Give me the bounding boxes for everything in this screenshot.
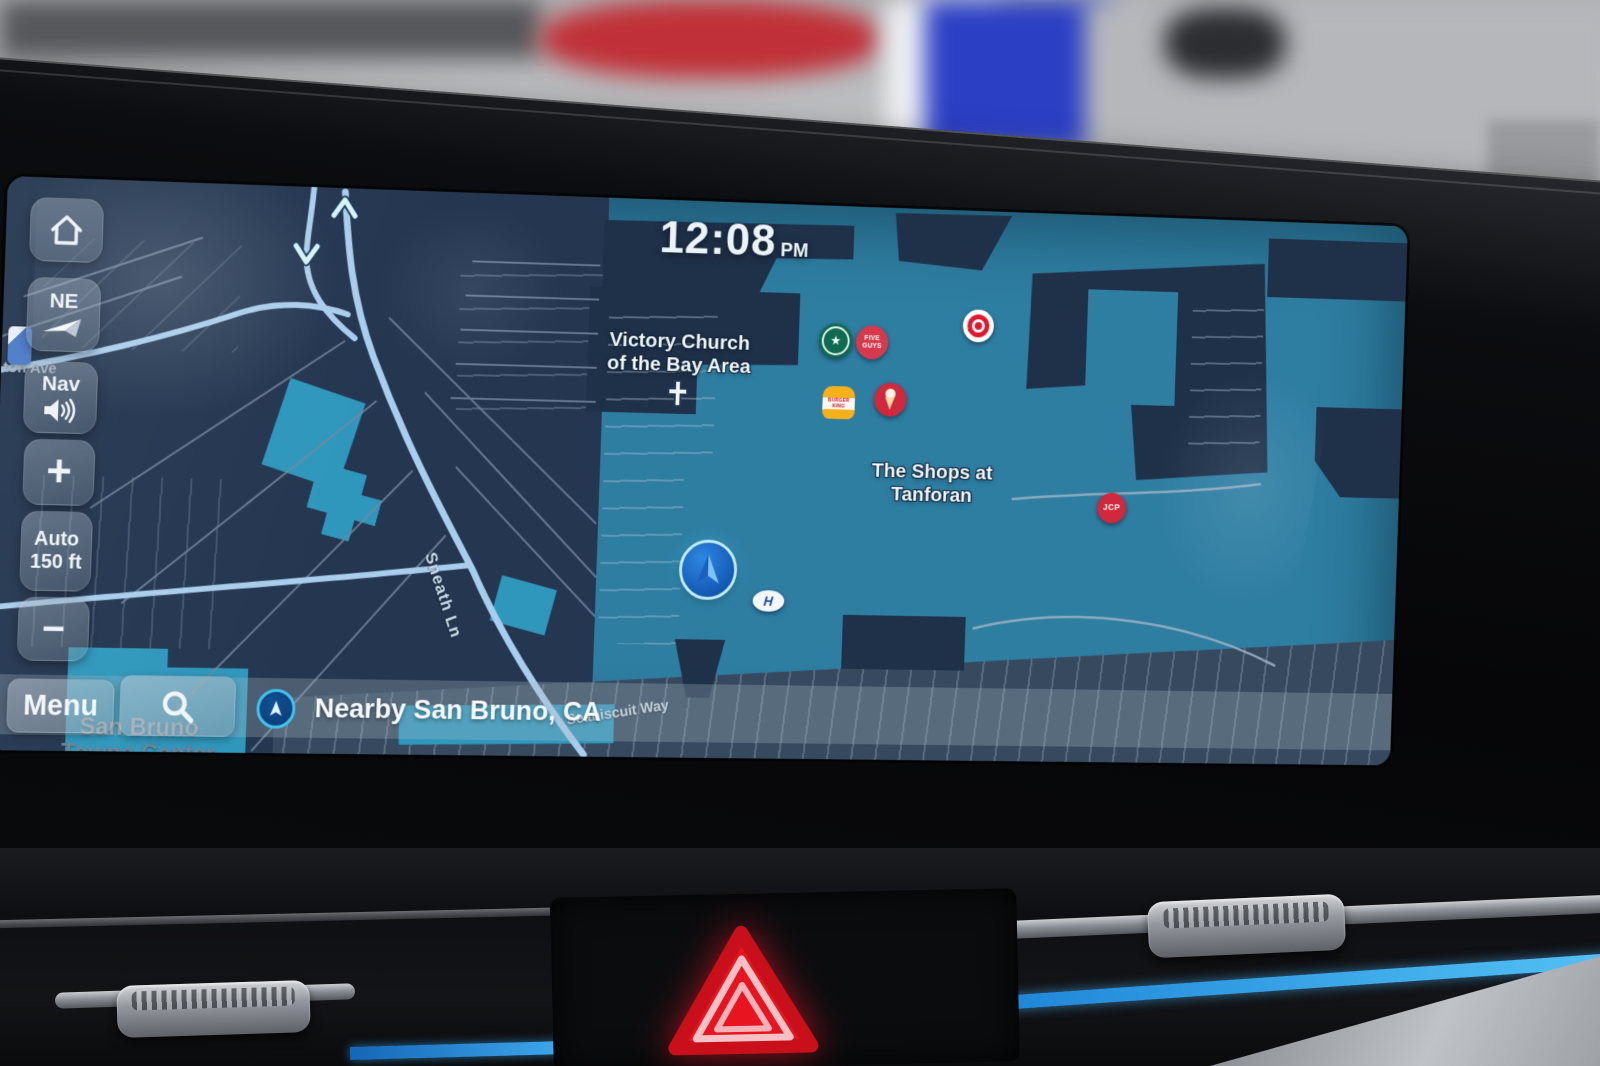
scale-line1: Auto [34, 528, 80, 552]
mall-label-line2: Tanforan [839, 481, 1023, 508]
vent-trim-bar [0, 908, 550, 929]
search-button[interactable] [119, 675, 237, 737]
map-scale-button[interactable]: Auto 150 ft [19, 511, 93, 592]
five-guys-line2: GUYS [862, 342, 882, 350]
zoom-out-label: − [41, 609, 66, 649]
vent-knob[interactable] [1147, 894, 1346, 959]
poi-label-mall: The Shops at Tanforan [839, 459, 1023, 508]
five-guys-line1: FIVE [862, 335, 882, 343]
clock-meridiem: PM [780, 240, 808, 262]
church-cross-icon [666, 379, 689, 409]
bk-bottom-bun [822, 409, 855, 419]
infotainment-screen-wrap: Victory Church of the Bay Area The Shops… [0, 176, 1408, 765]
clock-time: 12:08 [659, 210, 777, 265]
scale-line2: 150 ft [29, 551, 81, 575]
poi-burger-king-icon[interactable]: BURGER KING [821, 386, 856, 421]
hazard-button[interactable] [661, 917, 824, 1065]
menu-button-label: Menu [23, 689, 99, 723]
ambient-light-strip [350, 1041, 565, 1060]
speaker-icon [42, 397, 79, 424]
red-car-blur [540, 0, 880, 78]
ceiling-shadow [0, 0, 540, 58]
cone-body [885, 397, 895, 410]
zoom-in-label: + [45, 450, 72, 494]
car-wheel-blur [1165, 8, 1285, 78]
home-button[interactable] [29, 197, 104, 263]
vehicle-arrow-icon [691, 551, 726, 588]
compass-heading-label: NE [49, 289, 79, 314]
zoom-in-button[interactable]: + [22, 439, 96, 506]
menu-button[interactable]: Menu [6, 678, 115, 733]
home-icon [46, 211, 87, 248]
search-icon [158, 687, 197, 725]
blue-object-blur [925, 0, 1110, 150]
clock: 12:08PM [635, 208, 832, 268]
hazard-panel [550, 888, 1020, 1066]
hyundai-h-label: H [762, 593, 776, 609]
compass-needle-icon [41, 315, 85, 340]
vent-knob-ribs [1163, 901, 1329, 928]
nearby-location-label[interactable]: Nearby San Bruno, CA [314, 679, 603, 742]
nav-volume-label: Nav [42, 372, 81, 397]
infotainment-screen: Victory Church of the Bay Area The Shops… [0, 176, 1408, 765]
nav-volume-button[interactable]: Nav [23, 361, 99, 435]
car-dashboard-photo: Victory Church of the Bay Area The Shops… [0, 0, 1600, 1066]
vent-knob-ribs [132, 987, 295, 1011]
nearby-nav-icon [256, 689, 296, 729]
compass-button[interactable]: NE [26, 277, 102, 353]
zoom-out-button[interactable]: − [17, 596, 90, 661]
poi-label-church: Victory Church of the Bay Area [573, 327, 785, 379]
map-canvas[interactable]: Victory Church of the Bay Area The Shops… [0, 176, 1408, 765]
dashboard-vents [0, 848, 1600, 1066]
starbucks-ring: ★ [821, 326, 850, 356]
vent-knob[interactable] [116, 980, 311, 1038]
jcp-label: JCP [1103, 503, 1120, 512]
